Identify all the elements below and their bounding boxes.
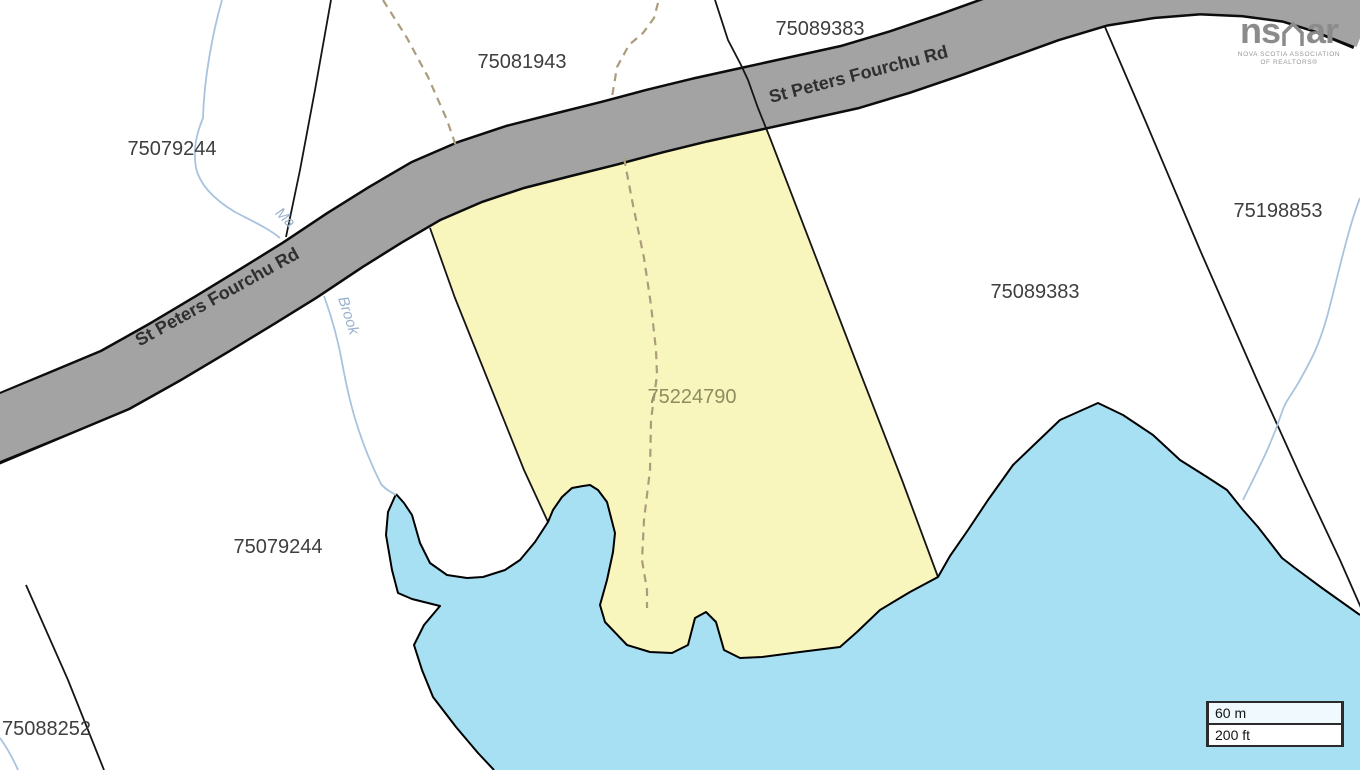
map-canvas: 75079244 75081943 75089383 75198853 7508… (0, 0, 1360, 770)
brook-label-lower: Brook (334, 294, 363, 338)
scale-bar-metric: 60 m (1209, 701, 1341, 723)
scale-bar: 60 m 200 ft (1206, 701, 1344, 747)
parcel-label-upper-left: 75079244 (128, 138, 217, 160)
parcel-label-lower-left: 75079244 (234, 536, 323, 558)
parcel-label-top-right: 75089383 (776, 18, 865, 40)
nsar-caption-line2: OF REALTORS® (1224, 59, 1354, 66)
parcel-boundary-line (286, 0, 331, 237)
property-map: 75079244 75081943 75089383 75198853 7508… (0, 0, 1360, 770)
brook-line-upper (195, 0, 280, 238)
brook-label-upper: Ma (272, 204, 299, 231)
house-icon (1281, 20, 1305, 47)
parcel-label-bottom-left-corner: 75088252 (2, 718, 91, 740)
parcel-boundary-line (26, 585, 104, 770)
stream-line-corner (0, 738, 18, 770)
parcel-label-top-center: 75081943 (478, 51, 567, 73)
scale-bar-imperial: 200 ft (1209, 723, 1341, 747)
parcel-label-mid-right: 75089383 (991, 281, 1080, 303)
nsar-logo: ns ar (1224, 16, 1354, 47)
nsar-logo-text-left: ns (1240, 16, 1280, 47)
trail-line (383, 0, 456, 146)
nsar-logo-text-right: ar (1306, 16, 1338, 47)
nsar-watermark: ns ar NOVA SCOTIA ASSOCIATION OF REALTOR… (1224, 16, 1354, 66)
stream-line-right (1243, 198, 1360, 500)
subject-parcel-label: 75224790 (648, 386, 737, 408)
nsar-caption-line1: NOVA SCOTIA ASSOCIATION (1224, 51, 1354, 58)
trail-line (612, 3, 658, 97)
parcel-label-right: 75198853 (1234, 200, 1323, 222)
